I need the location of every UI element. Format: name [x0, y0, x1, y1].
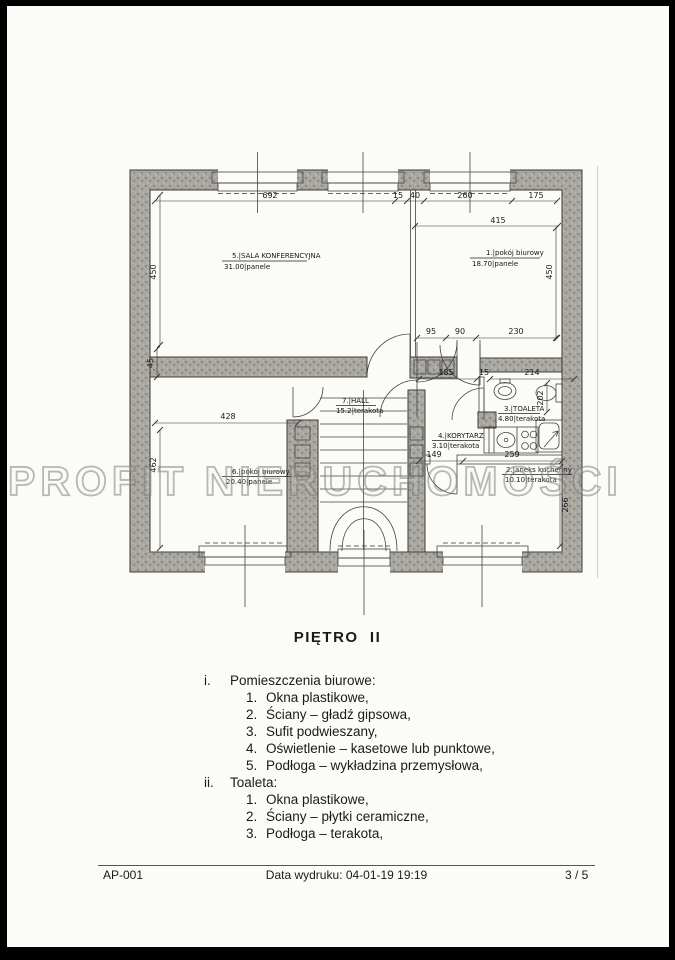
room-label-hall: 7.|HALL 15.2|terakota — [336, 397, 383, 415]
list-item: 2.Ściany – gładź gipsowa, — [246, 706, 495, 723]
svg-text:7.|HALL: 7.|HALL — [342, 397, 369, 405]
room-label-toaleta: 3.|TOALETA 4.80|terakota — [498, 405, 545, 423]
list-item: 4.Oświetlenie – kasetowe lub punktowe, — [246, 740, 495, 757]
section-title: Toaleta: — [230, 775, 277, 790]
svg-text:214: 214 — [524, 368, 539, 377]
notes-section-2-header: ii.Toaleta: — [204, 774, 495, 791]
list-item: 3.Podłoga – terakota, — [246, 825, 495, 842]
svg-text:230: 230 — [508, 327, 523, 336]
svg-text:4.|KORYTARZ: 4.|KORYTARZ — [438, 432, 484, 440]
dim-95-90-230: 95 90 230 — [414, 327, 560, 341]
dim-right-450: 450 — [545, 225, 559, 341]
toilet-fixtures — [494, 379, 562, 402]
svg-text:202: 202 — [536, 390, 545, 405]
page-border-right — [669, 0, 675, 960]
svg-text:1.|pokój biurowy: 1.|pokój biurowy — [486, 249, 544, 257]
page-border-top — [0, 0, 675, 6]
svg-text:185: 185 — [438, 368, 453, 377]
stove-burner-icon — [522, 431, 529, 438]
svg-text:18.70|panele: 18.70|panele — [472, 260, 518, 268]
dim-260: 260 — [457, 191, 472, 200]
svg-text:95: 95 — [426, 327, 436, 336]
room-label-pokoj-biurowy-1: 1.|pokój biurowy 18.70|panele — [470, 249, 544, 268]
dim-415: 415 — [412, 216, 561, 229]
svg-text:31.00|panele: 31.00|panele — [224, 263, 270, 271]
list-item: 5.Podłoga – wykładzina przemysłowa, — [246, 757, 495, 774]
svg-text:15: 15 — [479, 368, 489, 377]
dim-15: 15 — [393, 191, 403, 200]
page-title: PIĘTRO II — [0, 629, 675, 646]
dim-175: 175 — [528, 191, 543, 200]
notes-list: i.Pomieszczenia biurowe: 1.Okna plastiko… — [204, 672, 495, 842]
dim-40: 40 — [410, 191, 420, 200]
svg-text:15.2|terakota: 15.2|terakota — [336, 407, 383, 415]
svg-text:3.10|terakota: 3.10|terakota — [432, 442, 479, 450]
svg-text:45: 45 — [146, 358, 155, 368]
dim-692: 692 — [262, 191, 277, 200]
section-index: i. — [204, 672, 230, 689]
dim-left-450: 450 — [149, 192, 163, 348]
svg-text:450: 450 — [149, 264, 158, 279]
list-item: 3.Sufit podwieszany, — [246, 723, 495, 740]
shower-icon — [536, 420, 562, 452]
watermark: PROFIT NIERUCHOMOŚCI — [8, 458, 672, 505]
svg-text:4.80|terakota: 4.80|terakota — [498, 415, 545, 423]
footer-rule — [98, 865, 595, 866]
list-item: 2.Ściany – płytki ceramiczne, — [246, 808, 495, 825]
notes-section-1-header: i.Pomieszczenia biurowe: — [204, 672, 495, 689]
svg-text:428: 428 — [220, 412, 235, 421]
svg-text:450: 450 — [545, 264, 554, 279]
room-label-korytarz: 4.|KORYTARZ 3.10|terakota — [432, 432, 484, 450]
page-border-bottom — [0, 947, 675, 960]
room-label-sala-konferencyjna: 5.|SALA KONFERENCYJNA 31.00|panele — [222, 252, 321, 271]
kitchen-sink-icon — [497, 433, 515, 448]
page-border-left — [0, 0, 7, 960]
svg-text:90: 90 — [455, 327, 465, 336]
section-index: ii. — [204, 774, 230, 791]
footer-print-date: Data wydruku: 04-01-19 19:19 — [98, 868, 595, 882]
section-title: Pomieszczenia biurowe: — [230, 673, 376, 688]
dim-428: 428 — [152, 412, 301, 426]
list-item: 1.Okna plastikowe, — [246, 791, 495, 808]
svg-text:5.|SALA KONFERENCYJNA: 5.|SALA KONFERENCYJNA — [232, 252, 321, 260]
top-windows — [212, 152, 516, 213]
svg-text:415: 415 — [490, 216, 505, 225]
footer-page-number: 3 / 5 — [565, 868, 588, 882]
washbasin-icon — [494, 383, 516, 400]
svg-text:3.|TOALETA: 3.|TOALETA — [504, 405, 545, 413]
list-item: 1.Okna plastikowe, — [246, 689, 495, 706]
